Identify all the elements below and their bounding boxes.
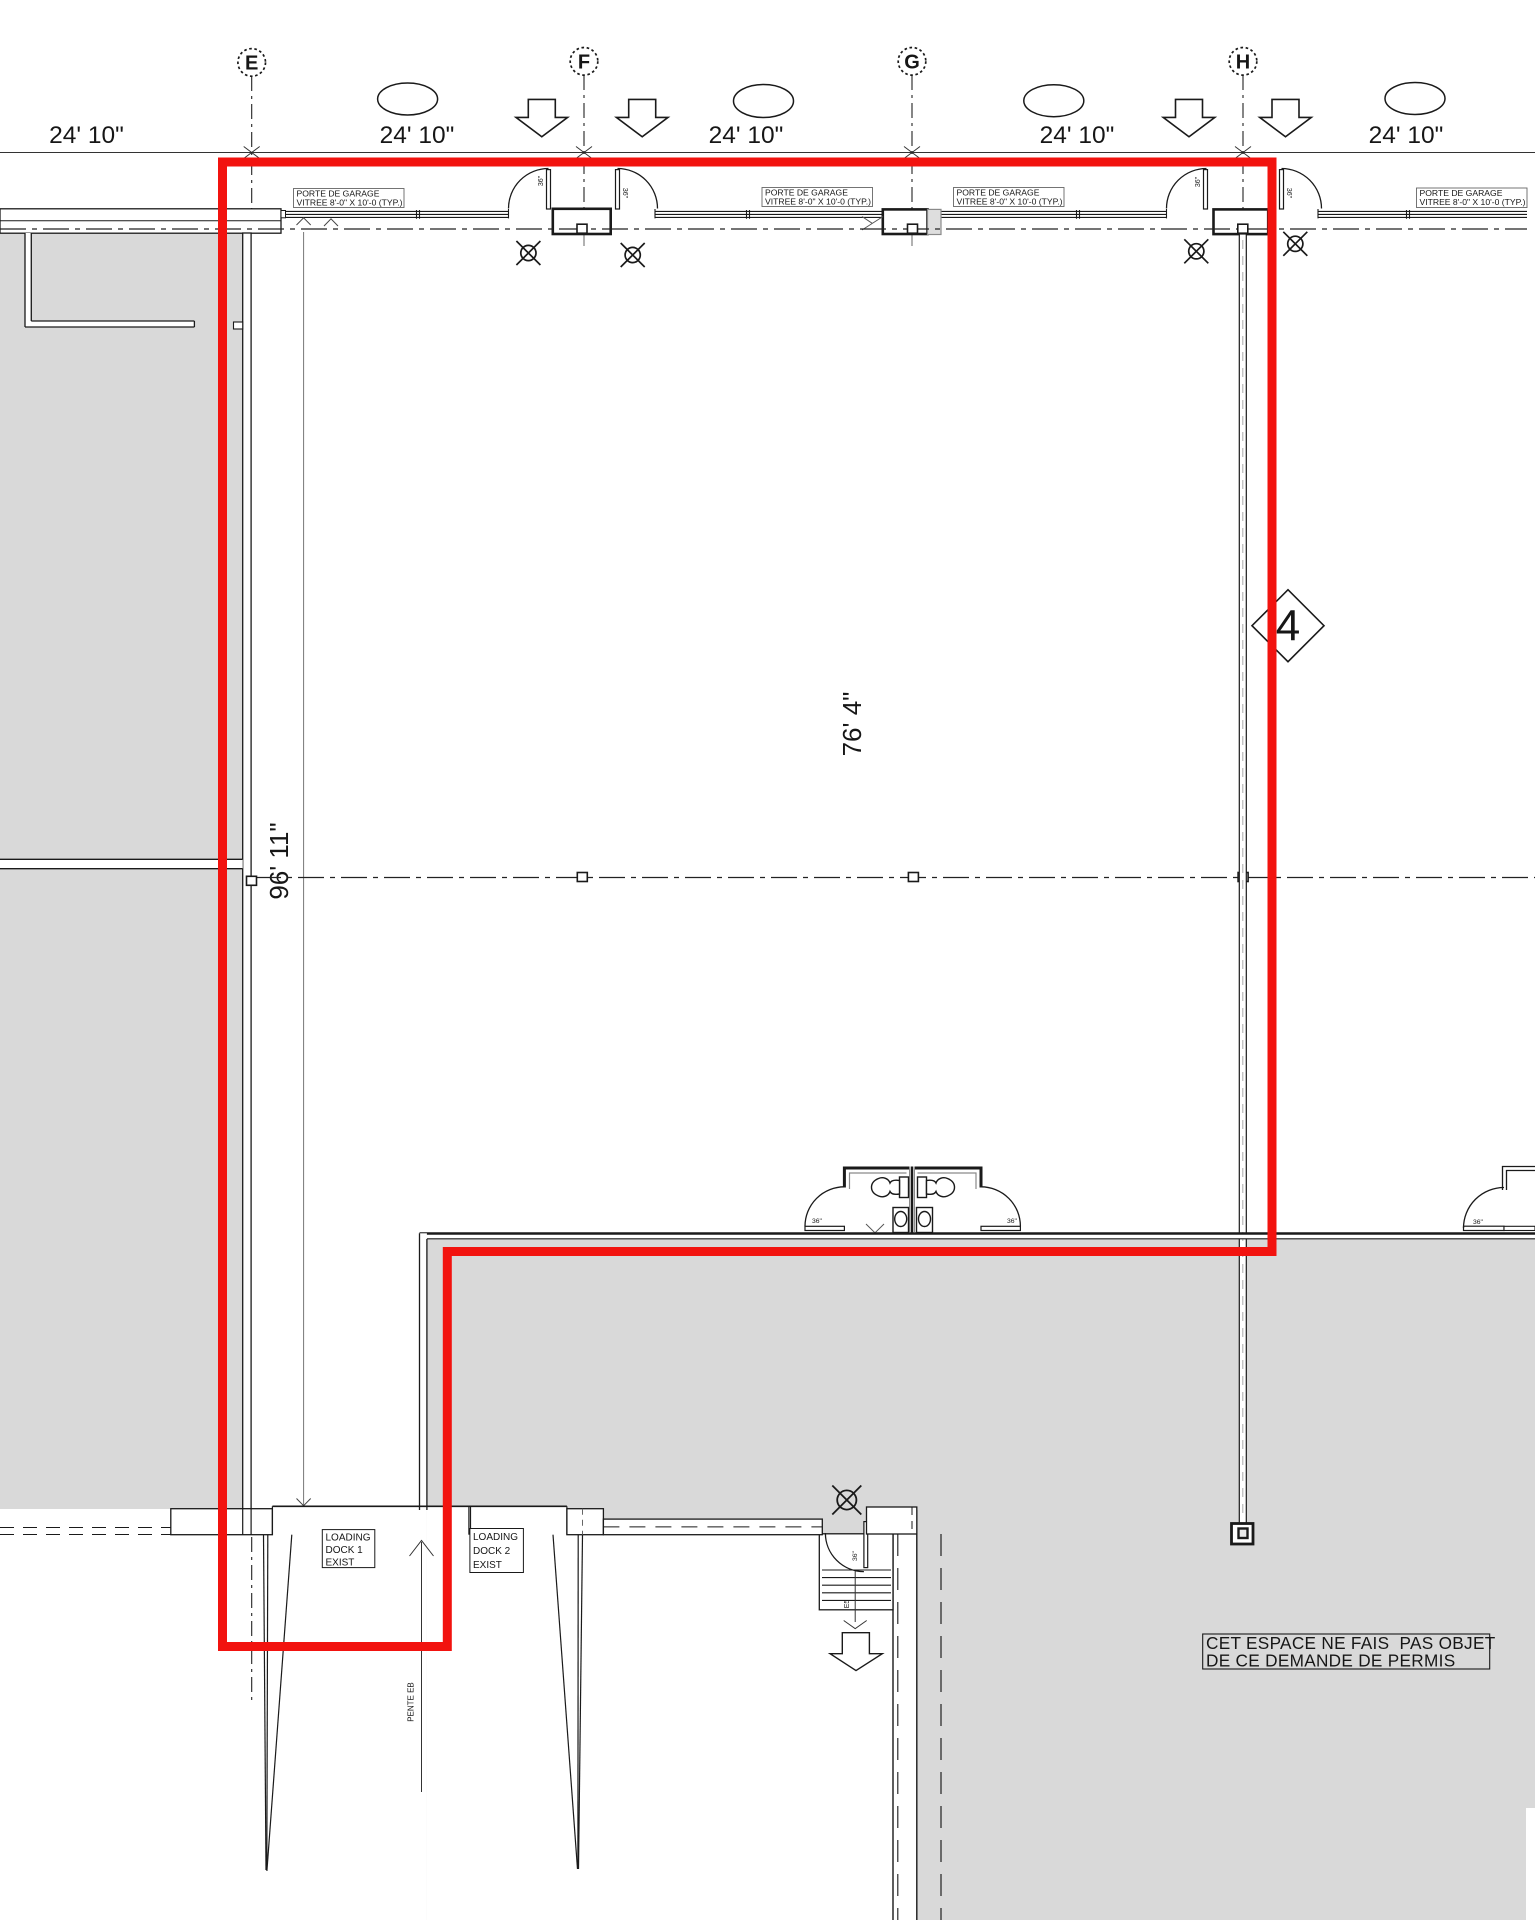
svg-text:E: E bbox=[245, 53, 258, 75]
svg-text:H: H bbox=[1236, 52, 1250, 74]
svg-text:24' 10": 24' 10" bbox=[1369, 122, 1444, 149]
svg-text:36": 36" bbox=[852, 1550, 859, 1561]
svg-text:36": 36" bbox=[1473, 1219, 1484, 1226]
svg-text:36": 36" bbox=[812, 1218, 823, 1225]
svg-text:DOCK 2: DOCK 2 bbox=[473, 1546, 511, 1557]
svg-text:VITREE 8'-0" X 10'-0 (TYP.): VITREE 8'-0" X 10'-0 (TYP.) bbox=[765, 197, 871, 207]
svg-text:F: F bbox=[578, 52, 590, 74]
svg-text:VITREE 8'-0" X 10'-0 (TYP.): VITREE 8'-0" X 10'-0 (TYP.) bbox=[297, 198, 403, 208]
svg-text:76' 4": 76' 4" bbox=[837, 692, 867, 757]
svg-text:24' 10": 24' 10" bbox=[49, 122, 124, 149]
svg-text:G: G bbox=[904, 52, 920, 74]
svg-text:DOCK 1: DOCK 1 bbox=[326, 1545, 364, 1556]
svg-text:36": 36" bbox=[538, 175, 545, 186]
svg-text:VITREE 8'-0" X 10'-0 (TYP.): VITREE 8'-0" X 10'-0 (TYP.) bbox=[957, 197, 1063, 207]
svg-text:EXIST: EXIST bbox=[326, 1558, 355, 1569]
svg-text:24' 10": 24' 10" bbox=[1040, 122, 1115, 149]
svg-text:36": 36" bbox=[1195, 176, 1202, 187]
svg-text:DE CE DEMANDE DE PERMIS: DE CE DEMANDE DE PERMIS bbox=[1206, 1651, 1455, 1671]
svg-text:EXIST: EXIST bbox=[473, 1560, 502, 1571]
svg-text:36": 36" bbox=[621, 188, 628, 199]
svg-text:4: 4 bbox=[1276, 602, 1300, 651]
svg-text:24' 10": 24' 10" bbox=[709, 122, 784, 149]
svg-text:LOADING: LOADING bbox=[326, 1533, 371, 1544]
svg-text:36": 36" bbox=[1007, 1218, 1018, 1225]
svg-text:36": 36" bbox=[1285, 188, 1292, 199]
svg-text:24' 10": 24' 10" bbox=[380, 122, 455, 149]
svg-text:E5: E5 bbox=[844, 1600, 851, 1609]
svg-text:VITREE 8'-0" X 10'-0 (TYP.): VITREE 8'-0" X 10'-0 (TYP.) bbox=[1420, 197, 1526, 207]
svg-text:PENTE EB: PENTE EB bbox=[407, 1682, 416, 1722]
svg-text:96' 11": 96' 11" bbox=[264, 822, 294, 899]
svg-text:LOADING: LOADING bbox=[473, 1532, 518, 1543]
